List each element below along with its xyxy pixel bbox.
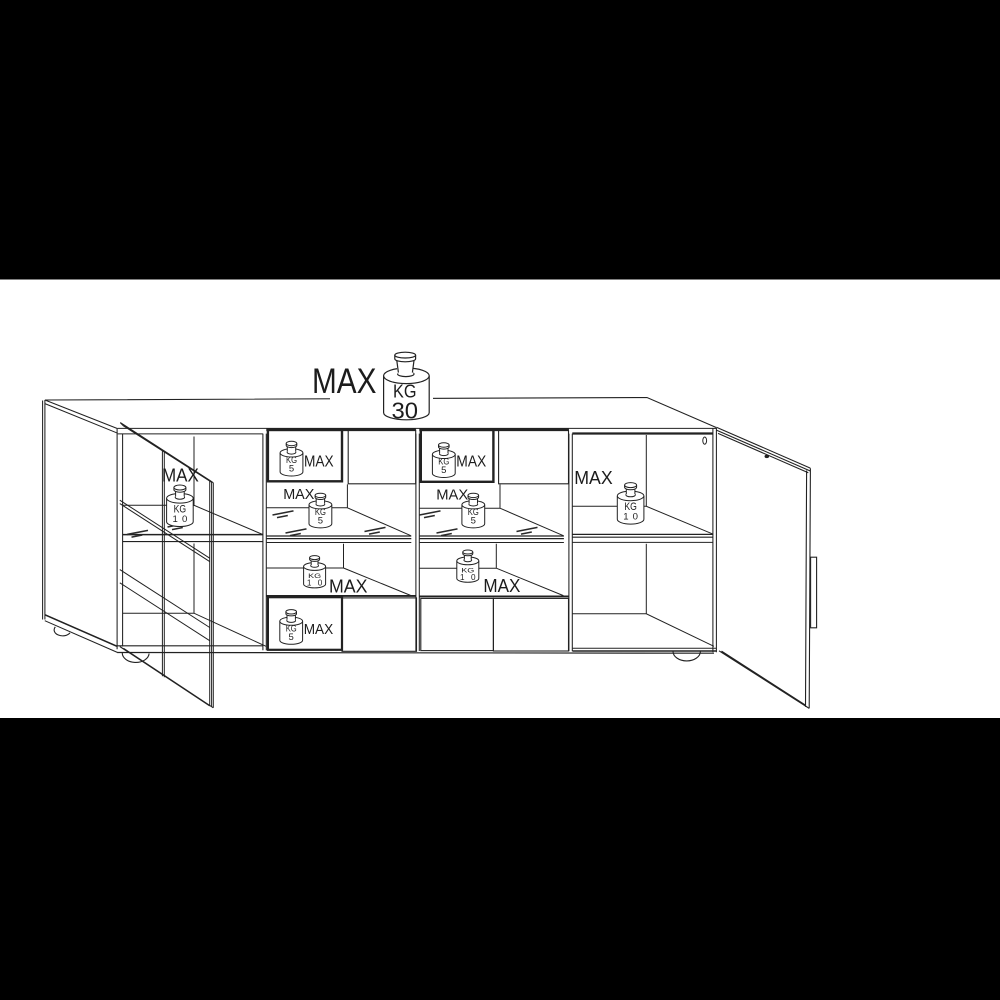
svg-text:MAX: MAX bbox=[283, 486, 314, 503]
svg-text:MAX: MAX bbox=[436, 487, 468, 504]
svg-text:MAX: MAX bbox=[162, 464, 199, 485]
svg-text:MAX: MAX bbox=[304, 622, 334, 638]
svg-text:MAX: MAX bbox=[312, 362, 377, 401]
svg-text:MAX: MAX bbox=[456, 454, 487, 471]
svg-text:MAX: MAX bbox=[574, 468, 613, 488]
svg-text:MAX: MAX bbox=[329, 576, 368, 597]
svg-text:30: 30 bbox=[392, 397, 419, 423]
svg-text:MAX: MAX bbox=[483, 575, 520, 596]
svg-text:MAX: MAX bbox=[304, 453, 334, 470]
